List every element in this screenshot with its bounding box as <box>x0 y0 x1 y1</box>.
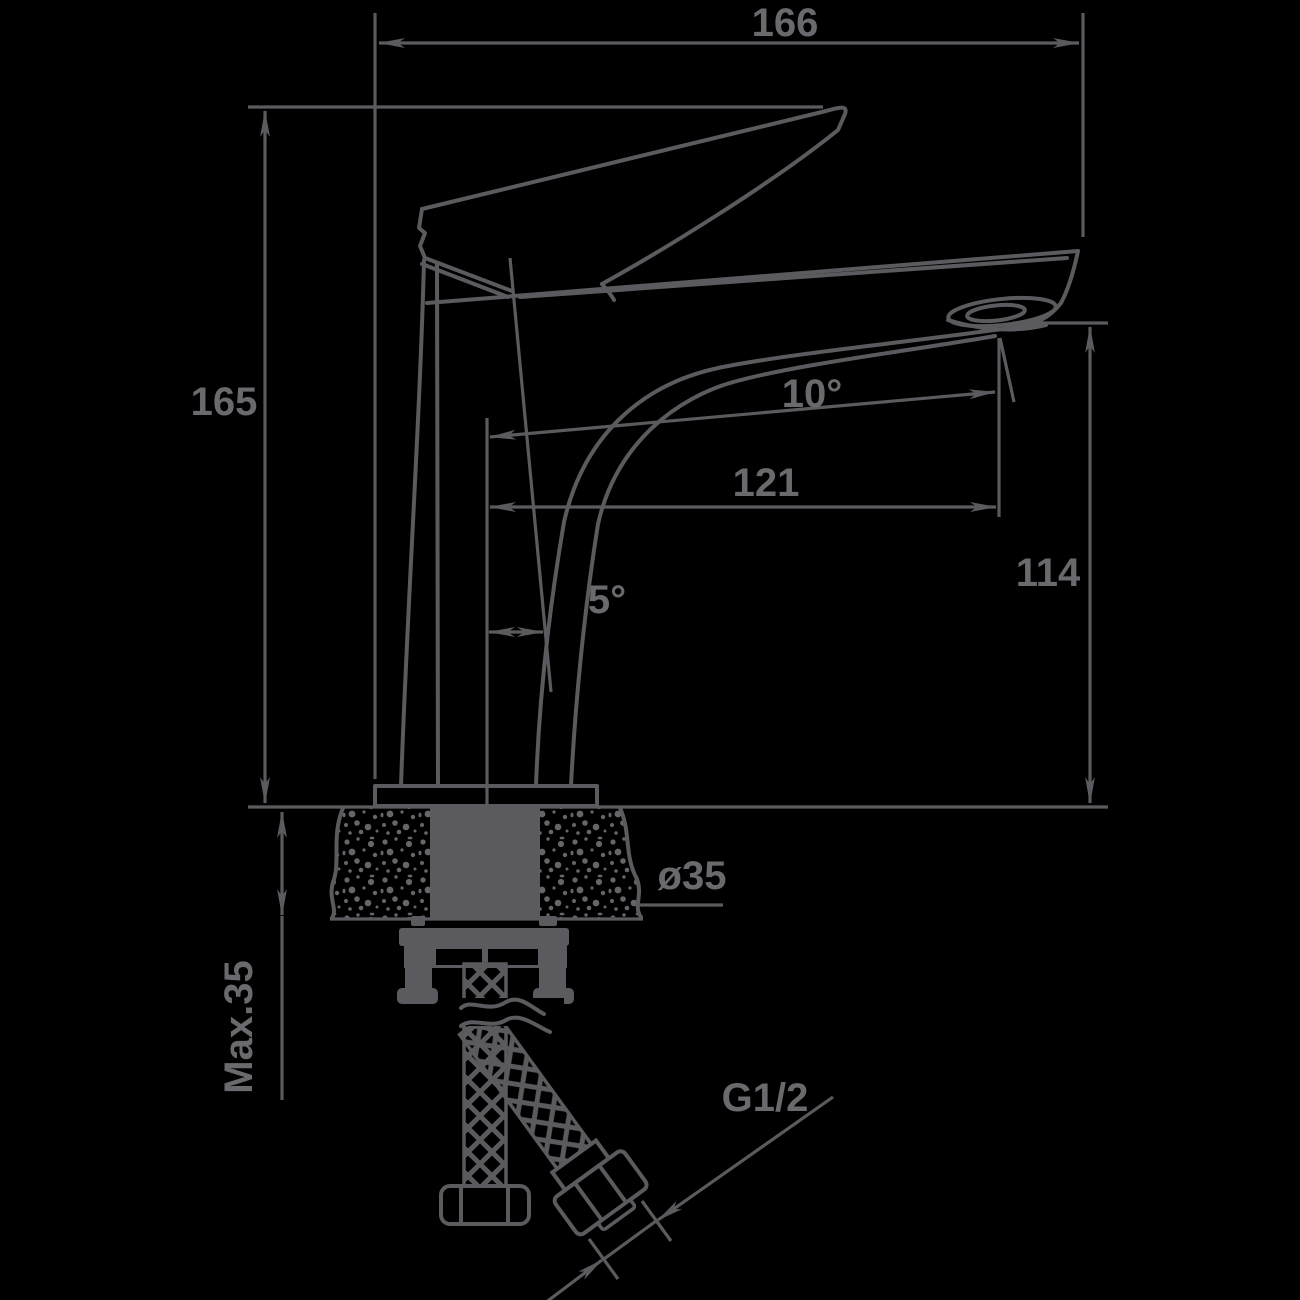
dimension-hole-diameter: ø35 <box>637 854 726 905</box>
faucet-outline <box>375 108 1078 806</box>
dim-label-spout-reach: 121 <box>733 461 800 505</box>
lever-handle <box>419 108 846 300</box>
dim-label-body-tilt: 5° <box>588 578 626 622</box>
dimension-max-counter-thickness: Max.35 <box>217 812 282 1100</box>
dim-label-overall-width: 166 <box>752 1 819 45</box>
faucet-dimension-drawing: 166 165 114 121 10° 5° Max.35 ø35 <box>0 0 1300 1300</box>
faucet-shank <box>430 808 540 920</box>
dimension-overall-height: 165 <box>191 107 823 803</box>
bracket-leg-right <box>539 966 566 990</box>
bracket-leg-left <box>405 966 432 990</box>
dimension-spout-reach: 121 <box>487 338 999 805</box>
hose-nut-vertical <box>441 1186 529 1224</box>
counter-hatch-left <box>332 808 430 918</box>
technical-drawing-page: 166 165 114 121 10° 5° Max.35 ø35 <box>0 0 1300 1300</box>
faucet-body <box>401 260 1038 786</box>
dim-label-thread-size: G1/2 <box>722 1076 809 1120</box>
dim-label-overall-height: 165 <box>191 380 258 424</box>
spout <box>427 251 1078 322</box>
dimension-spout-height: 114 <box>1013 323 1108 803</box>
dim-label-spout-height: 114 <box>1016 551 1081 595</box>
bracket-foot-left <box>397 988 438 1004</box>
dimension-spout-angle: 10° <box>490 338 1014 437</box>
dimension-overall-width: 166 <box>375 1 1083 779</box>
dim-label-hole-diameter: ø35 <box>658 854 727 898</box>
dimension-body-tilt: 5° <box>489 258 626 692</box>
dim-label-max-counter-thickness: Max.35 <box>217 960 261 1093</box>
aerator <box>947 293 1057 330</box>
dim-label-spout-angle: 10° <box>782 372 843 416</box>
